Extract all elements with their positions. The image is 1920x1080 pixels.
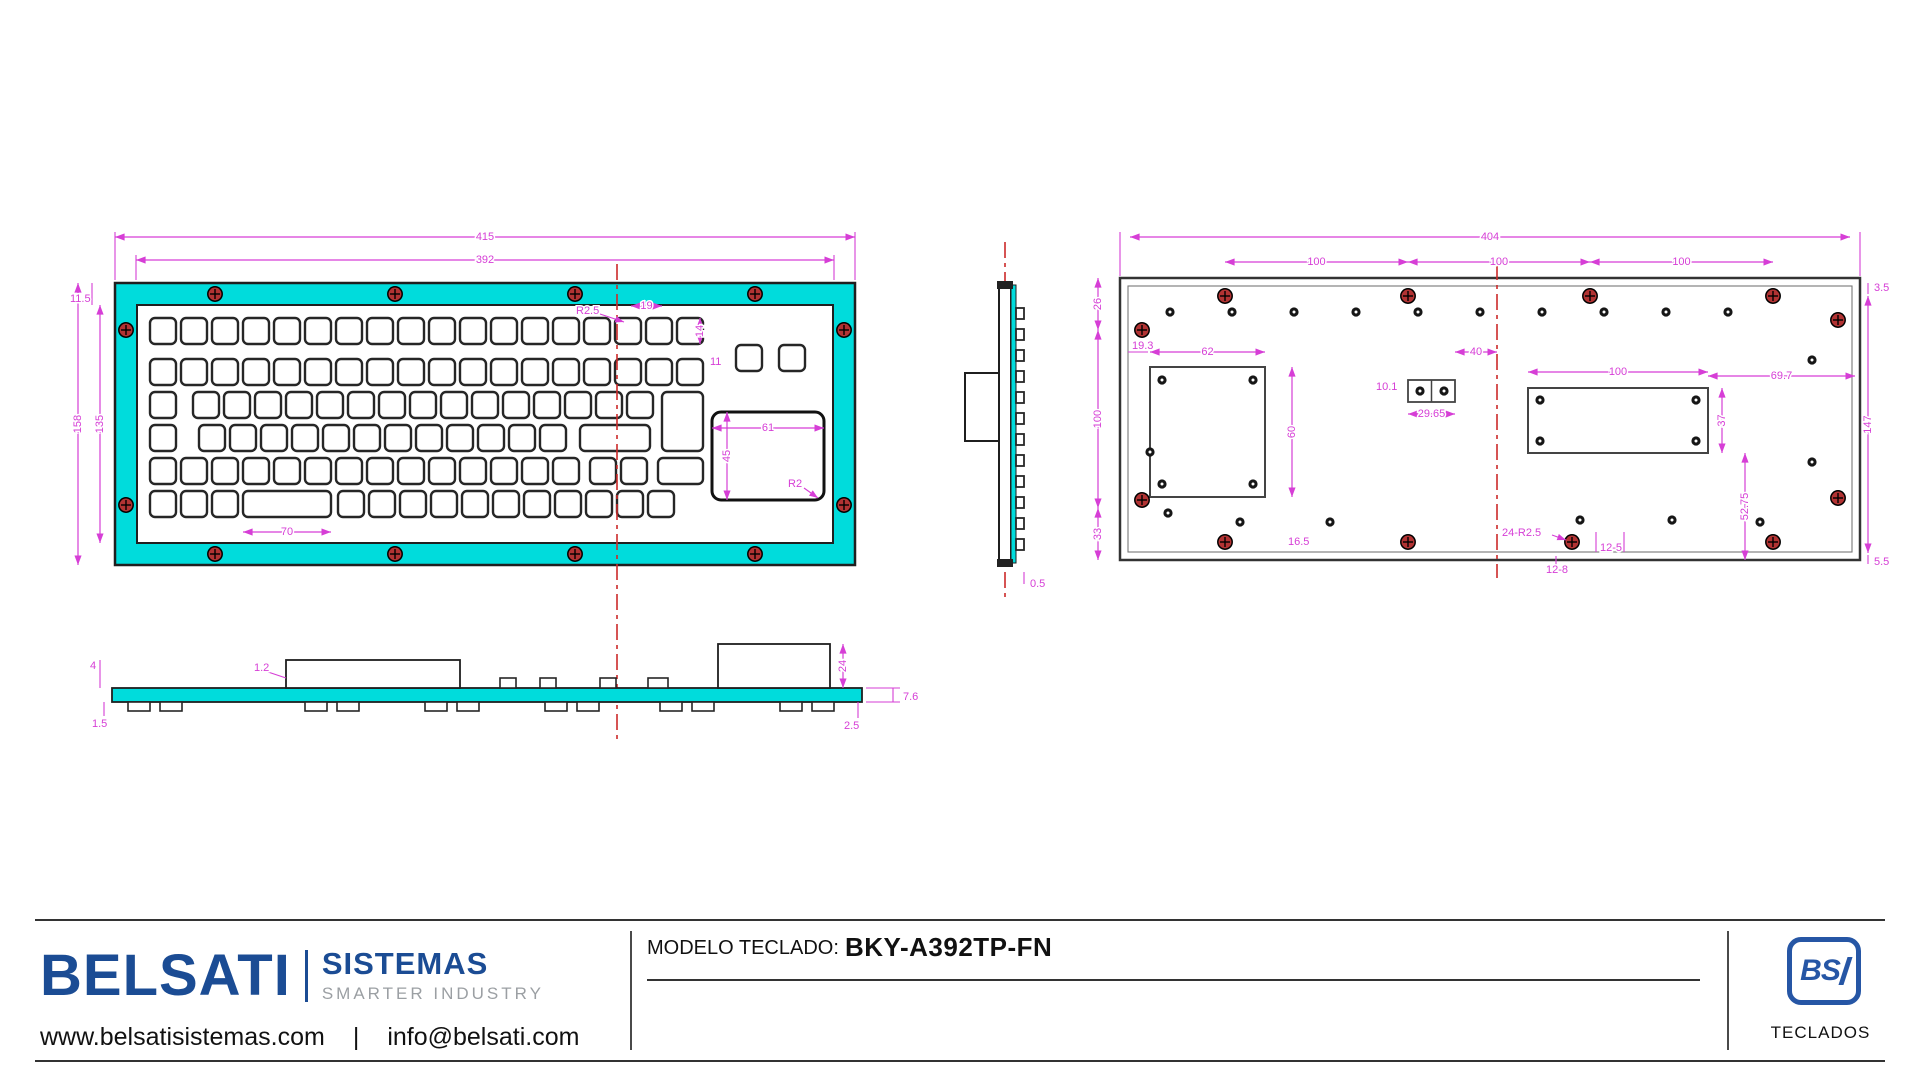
key	[429, 318, 455, 344]
key-profile	[1016, 476, 1024, 487]
key	[336, 318, 362, 344]
bsi-logo: BS	[1787, 937, 1861, 1005]
dim-label: 45	[721, 450, 733, 462]
hole	[1157, 479, 1166, 488]
key	[193, 392, 219, 418]
key	[261, 425, 287, 451]
model-value: BKY-A392TP-FN	[845, 932, 1052, 963]
key-profile	[1016, 539, 1024, 550]
bsi-logo-slash	[1838, 957, 1852, 985]
key	[323, 425, 349, 451]
brand-name: BELSATI	[40, 947, 291, 1005]
key	[615, 318, 641, 344]
key	[460, 359, 486, 385]
key-profile	[1016, 392, 1024, 403]
hole	[1575, 515, 1584, 524]
key	[230, 425, 256, 451]
mounting-screw	[388, 547, 402, 561]
hole	[1755, 517, 1764, 526]
hole-inner	[1239, 521, 1242, 524]
hole	[1535, 436, 1544, 445]
hole	[1351, 307, 1360, 316]
dim-label: 52.75	[1739, 493, 1751, 521]
section-foot	[425, 702, 447, 711]
technical-drawing-canvas: 415392196170158135144511.5R2.511R20.5404…	[0, 0, 1920, 919]
hole-inner	[1355, 311, 1358, 314]
dim-label: 29.65	[1418, 408, 1446, 420]
key	[779, 345, 805, 371]
dim-label: 40	[1470, 346, 1482, 358]
key	[491, 318, 517, 344]
key	[441, 392, 467, 418]
dim-label: R2.5	[576, 305, 599, 317]
hole	[1227, 307, 1236, 316]
side-enclosure	[965, 373, 999, 441]
hole-inner	[1695, 399, 1698, 402]
key	[367, 359, 393, 385]
key	[150, 392, 176, 418]
key	[586, 491, 612, 517]
section-component	[286, 660, 460, 688]
brand-sub: SISTEMAS	[322, 948, 544, 981]
key	[662, 392, 703, 451]
section-bump	[648, 678, 668, 688]
dim-label: 100	[1609, 366, 1627, 378]
key-profile	[1016, 350, 1024, 361]
footer: BELSATI SISTEMAS SMARTER INDUSTRY www.be…	[35, 919, 1885, 1062]
hole	[1661, 307, 1670, 316]
hole	[1235, 517, 1244, 526]
dim-label: 19	[640, 300, 652, 312]
key	[584, 318, 610, 344]
hole	[1691, 395, 1700, 404]
hole-inner	[1169, 311, 1172, 314]
key	[565, 392, 591, 418]
dim-label: 61	[762, 422, 774, 434]
key	[212, 458, 238, 484]
key	[181, 318, 207, 344]
hole	[1807, 457, 1816, 466]
key-profile	[1016, 518, 1024, 529]
key	[369, 491, 395, 517]
mounting-screw	[1831, 313, 1845, 327]
section-foot	[305, 702, 327, 711]
key	[400, 491, 426, 517]
mounting-screw	[837, 323, 851, 337]
key	[367, 458, 393, 484]
dim-label: 100	[1672, 256, 1690, 268]
key	[181, 491, 207, 517]
key	[212, 359, 238, 385]
hole	[1439, 386, 1448, 395]
hole-inner	[1727, 311, 1730, 314]
hole-inner	[1541, 311, 1544, 314]
hole-inner	[1231, 311, 1234, 314]
mounting-screw	[119, 323, 133, 337]
mounting-screw	[1401, 535, 1415, 549]
key	[648, 491, 674, 517]
key-profile	[1016, 434, 1024, 445]
key	[150, 425, 176, 451]
key	[491, 359, 517, 385]
mounting-screw	[748, 287, 762, 301]
brand-logo: BELSATI SISTEMAS SMARTER INDUSTRY	[40, 947, 544, 1005]
side-view: 0.5	[965, 242, 1045, 600]
hole-inner	[1252, 379, 1255, 382]
hole-inner	[1329, 521, 1332, 524]
dim-label: 12-5	[1600, 542, 1622, 554]
key	[150, 458, 176, 484]
key	[398, 359, 424, 385]
key	[478, 425, 504, 451]
key	[274, 318, 300, 344]
mounting-screw	[1766, 535, 1780, 549]
key	[243, 318, 269, 344]
key	[534, 392, 560, 418]
section-foot	[577, 702, 599, 711]
website-text: www.belsatisistemas.com	[40, 1023, 325, 1052]
key	[199, 425, 225, 451]
key	[338, 491, 364, 517]
mounting-screw	[1766, 289, 1780, 303]
section-bar	[112, 688, 862, 702]
dim-label: 62	[1201, 346, 1213, 358]
key	[181, 458, 207, 484]
key	[274, 458, 300, 484]
key-profile	[1016, 497, 1024, 508]
footer-divider-right	[1727, 931, 1729, 1050]
dim-label: 415	[476, 231, 494, 243]
key	[292, 425, 318, 451]
section-foot	[160, 702, 182, 711]
key	[305, 359, 331, 385]
mounting-screw	[568, 547, 582, 561]
hole-inner	[1603, 311, 1606, 314]
contact-row: www.belsatisistemas.com | info@belsati.c…	[40, 1023, 579, 1052]
mounting-screw	[748, 547, 762, 561]
key	[460, 318, 486, 344]
key	[416, 425, 442, 451]
key	[410, 392, 436, 418]
key	[615, 359, 641, 385]
key	[540, 425, 566, 451]
hole-inner	[1811, 461, 1814, 464]
hole	[1723, 307, 1732, 316]
mounting-screw	[1218, 289, 1232, 303]
dim-label: 60	[1286, 426, 1298, 438]
model-label: MODELO TECLADO:	[647, 937, 839, 960]
mounting-screw	[119, 498, 133, 512]
key-profile	[1016, 413, 1024, 424]
dim-label: 14	[694, 325, 706, 337]
key	[348, 392, 374, 418]
hole	[1248, 479, 1257, 488]
hole-inner	[1443, 390, 1446, 393]
key	[596, 392, 622, 418]
key	[150, 491, 176, 517]
bottom-margin	[0, 1062, 1920, 1080]
key	[398, 318, 424, 344]
end-cap	[997, 281, 1013, 289]
hole	[1415, 386, 1424, 395]
key	[379, 392, 405, 418]
hole	[1163, 508, 1172, 517]
dim-label: 1.5	[92, 718, 107, 730]
key	[274, 359, 300, 385]
dim-label: 16.5	[1288, 536, 1309, 548]
dim-label: 4	[90, 660, 96, 672]
key	[522, 458, 548, 484]
dim-label: 3.5	[1874, 282, 1889, 294]
dim-label: 147	[1862, 415, 1874, 433]
mounting-screw	[837, 498, 851, 512]
key	[553, 458, 579, 484]
dim-label: 37	[1716, 414, 1728, 426]
back-view: 404100100100624010069.729.65261003360375…	[1092, 231, 1889, 578]
dim-label: 2.5	[844, 720, 859, 732]
dim-label: 24-R2.5	[1502, 527, 1541, 539]
key	[677, 359, 703, 385]
section-foot	[457, 702, 479, 711]
key	[491, 458, 517, 484]
brand-tagline: SMARTER INDUSTRY	[322, 984, 544, 1004]
dim-label: 158	[72, 415, 84, 433]
dim-label: 1.2	[254, 662, 269, 674]
hole-inner	[1695, 440, 1698, 443]
footer-divider-left	[630, 931, 632, 1050]
key	[503, 392, 529, 418]
key	[553, 318, 579, 344]
section-component	[718, 644, 830, 688]
key	[255, 392, 281, 418]
dim-label: 11.5	[70, 293, 91, 305]
dim-label: R2	[788, 478, 802, 490]
brand-stack: SISTEMAS SMARTER INDUSTRY	[322, 948, 544, 1004]
dim-extension	[268, 672, 286, 678]
key	[305, 458, 331, 484]
key	[460, 458, 486, 484]
hole	[1165, 307, 1174, 316]
key-profile	[1016, 455, 1024, 466]
dim-label: 392	[476, 254, 494, 266]
hole-inner	[1579, 519, 1582, 522]
key	[509, 425, 535, 451]
dim-label: 19.3	[1132, 340, 1153, 352]
mounting-screw	[1831, 491, 1845, 505]
key	[367, 318, 393, 344]
hole-inner	[1252, 483, 1255, 486]
key	[181, 359, 207, 385]
hole-inner	[1417, 311, 1420, 314]
brand-divider	[305, 950, 308, 1002]
key	[617, 491, 643, 517]
key	[621, 458, 647, 484]
hole	[1145, 447, 1154, 456]
key	[447, 425, 473, 451]
section-foot	[545, 702, 567, 711]
key-profile	[1016, 371, 1024, 382]
dim-label: 100	[1307, 256, 1325, 268]
dim-label: 5.5	[1874, 556, 1889, 568]
hole	[1667, 515, 1676, 524]
dim-label: 7.6	[903, 691, 918, 703]
dim-label: 26	[1092, 298, 1104, 310]
dim-label: 135	[94, 415, 106, 433]
key	[590, 458, 616, 484]
key	[398, 458, 424, 484]
section-foot	[812, 702, 834, 711]
key	[212, 491, 238, 517]
hole	[1413, 307, 1422, 316]
key	[524, 491, 550, 517]
dim-label: 33	[1092, 528, 1104, 540]
key	[472, 392, 498, 418]
key	[286, 392, 312, 418]
key	[431, 491, 457, 517]
hole-inner	[1149, 451, 1152, 454]
section-bump	[500, 678, 516, 688]
dim-label: 100	[1490, 256, 1508, 268]
mounting-screw	[1583, 289, 1597, 303]
key-profile	[1016, 329, 1024, 340]
dim-label: 11	[710, 356, 721, 368]
dim-label: 24	[837, 660, 849, 672]
hole	[1289, 307, 1298, 316]
hole-inner	[1161, 379, 1164, 382]
hole-inner	[1293, 311, 1296, 314]
key	[243, 491, 331, 517]
hole	[1325, 517, 1334, 526]
dim-label: 10.1	[1376, 381, 1397, 393]
section-foot	[780, 702, 802, 711]
mounting-screw	[208, 547, 222, 561]
key	[150, 318, 176, 344]
key	[580, 425, 650, 451]
section-foot	[660, 702, 682, 711]
dim-label: 0.5	[1030, 578, 1045, 590]
key	[493, 491, 519, 517]
key	[646, 318, 672, 344]
key	[522, 318, 548, 344]
hole-inner	[1479, 311, 1482, 314]
hole-inner	[1811, 359, 1814, 362]
hole-inner	[1419, 390, 1422, 393]
mounting-screw	[1218, 535, 1232, 549]
email-text: info@belsati.com	[387, 1023, 579, 1052]
key	[627, 392, 653, 418]
mounting-screw	[568, 287, 582, 301]
key	[658, 458, 703, 484]
hole	[1248, 375, 1257, 384]
bsi-caption: TECLADOS	[1763, 1023, 1878, 1043]
dim-label: 69.7	[1771, 370, 1792, 382]
side-plate	[999, 285, 1011, 563]
section-foot	[692, 702, 714, 711]
key	[243, 359, 269, 385]
key	[736, 345, 762, 371]
hole	[1807, 355, 1816, 364]
mounting-screw	[208, 287, 222, 301]
section-foot	[128, 702, 150, 711]
key	[584, 359, 610, 385]
key	[336, 359, 362, 385]
dim-label: 12-8	[1546, 564, 1568, 576]
section-bump	[600, 678, 616, 688]
hole	[1599, 307, 1608, 316]
hole	[1691, 436, 1700, 445]
hole-inner	[1671, 519, 1674, 522]
key	[150, 359, 176, 385]
key	[243, 458, 269, 484]
key	[385, 425, 411, 451]
key	[522, 359, 548, 385]
section-foot	[337, 702, 359, 711]
end-cap	[997, 559, 1013, 567]
key	[305, 318, 331, 344]
mounting-screw	[1135, 493, 1149, 507]
key	[317, 392, 343, 418]
hole	[1475, 307, 1484, 316]
key	[646, 359, 672, 385]
hole-inner	[1665, 311, 1668, 314]
key	[354, 425, 380, 451]
hole-inner	[1759, 521, 1762, 524]
key	[429, 359, 455, 385]
key	[336, 458, 362, 484]
contact-separator: |	[353, 1023, 360, 1052]
hole-inner	[1167, 512, 1170, 515]
key	[553, 359, 579, 385]
hole	[1157, 375, 1166, 384]
key	[224, 392, 250, 418]
mounting-screw	[1135, 323, 1149, 337]
section-bump	[540, 678, 556, 688]
key-profile	[1016, 308, 1024, 319]
mounting-screw	[388, 287, 402, 301]
mounting-screw	[1565, 535, 1579, 549]
hole	[1535, 395, 1544, 404]
key	[462, 491, 488, 517]
key	[212, 318, 238, 344]
hole-inner	[1539, 440, 1542, 443]
hole-inner	[1161, 483, 1164, 486]
key	[555, 491, 581, 517]
model-underline	[647, 979, 1700, 981]
hole	[1537, 307, 1546, 316]
bsi-logo-text: BS	[1800, 954, 1840, 988]
dim-label: 404	[1481, 231, 1499, 243]
dim-label: 70	[281, 526, 293, 538]
mounting-screw	[1401, 289, 1415, 303]
key	[429, 458, 455, 484]
dim-label: 100	[1092, 410, 1104, 428]
hole-inner	[1539, 399, 1542, 402]
bottom-view: 2441.51.27.62.5	[90, 644, 918, 732]
